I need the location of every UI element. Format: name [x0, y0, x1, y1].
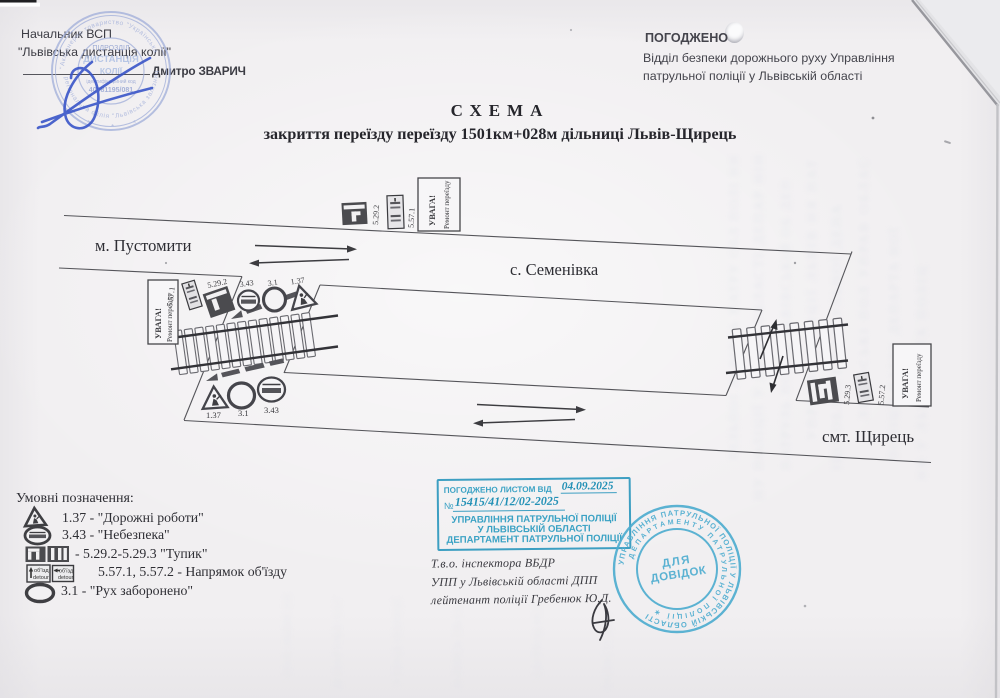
svg-text:УВАГА!: УВАГА!: [427, 195, 437, 226]
svg-text:5.57.2: 5.57.2: [877, 384, 888, 405]
svg-text:5.57.1: 5.57.1: [407, 208, 417, 228]
svg-text:1.37: 1.37: [206, 410, 221, 420]
svg-text:3.1: 3.1: [267, 278, 278, 288]
svg-text:3.43: 3.43: [264, 405, 279, 415]
svg-text:Ремонт переїзду: Ремонт переїзду: [915, 353, 923, 402]
svg-text:5.29.2: 5.29.2: [371, 205, 381, 225]
svg-text:УВАГА!: УВАГА!: [900, 368, 910, 399]
svg-text:3.1: 3.1: [238, 408, 249, 418]
svg-text:1.37: 1.37: [290, 276, 305, 287]
svg-text:3.43: 3.43: [239, 278, 254, 289]
svg-text:detour: detour: [58, 575, 73, 581]
svg-text:об'їзд: об'їзд: [59, 569, 74, 575]
svg-text:УВАГА!: УВАГА!: [153, 308, 163, 339]
svg-text:5.29.3: 5.29.3: [842, 384, 853, 405]
svg-text:detour: detour: [33, 575, 49, 581]
svg-text:об'їзд: об'їзд: [34, 568, 49, 574]
svg-text:Ремонт переїзду: Ремонт переїзду: [443, 180, 451, 229]
